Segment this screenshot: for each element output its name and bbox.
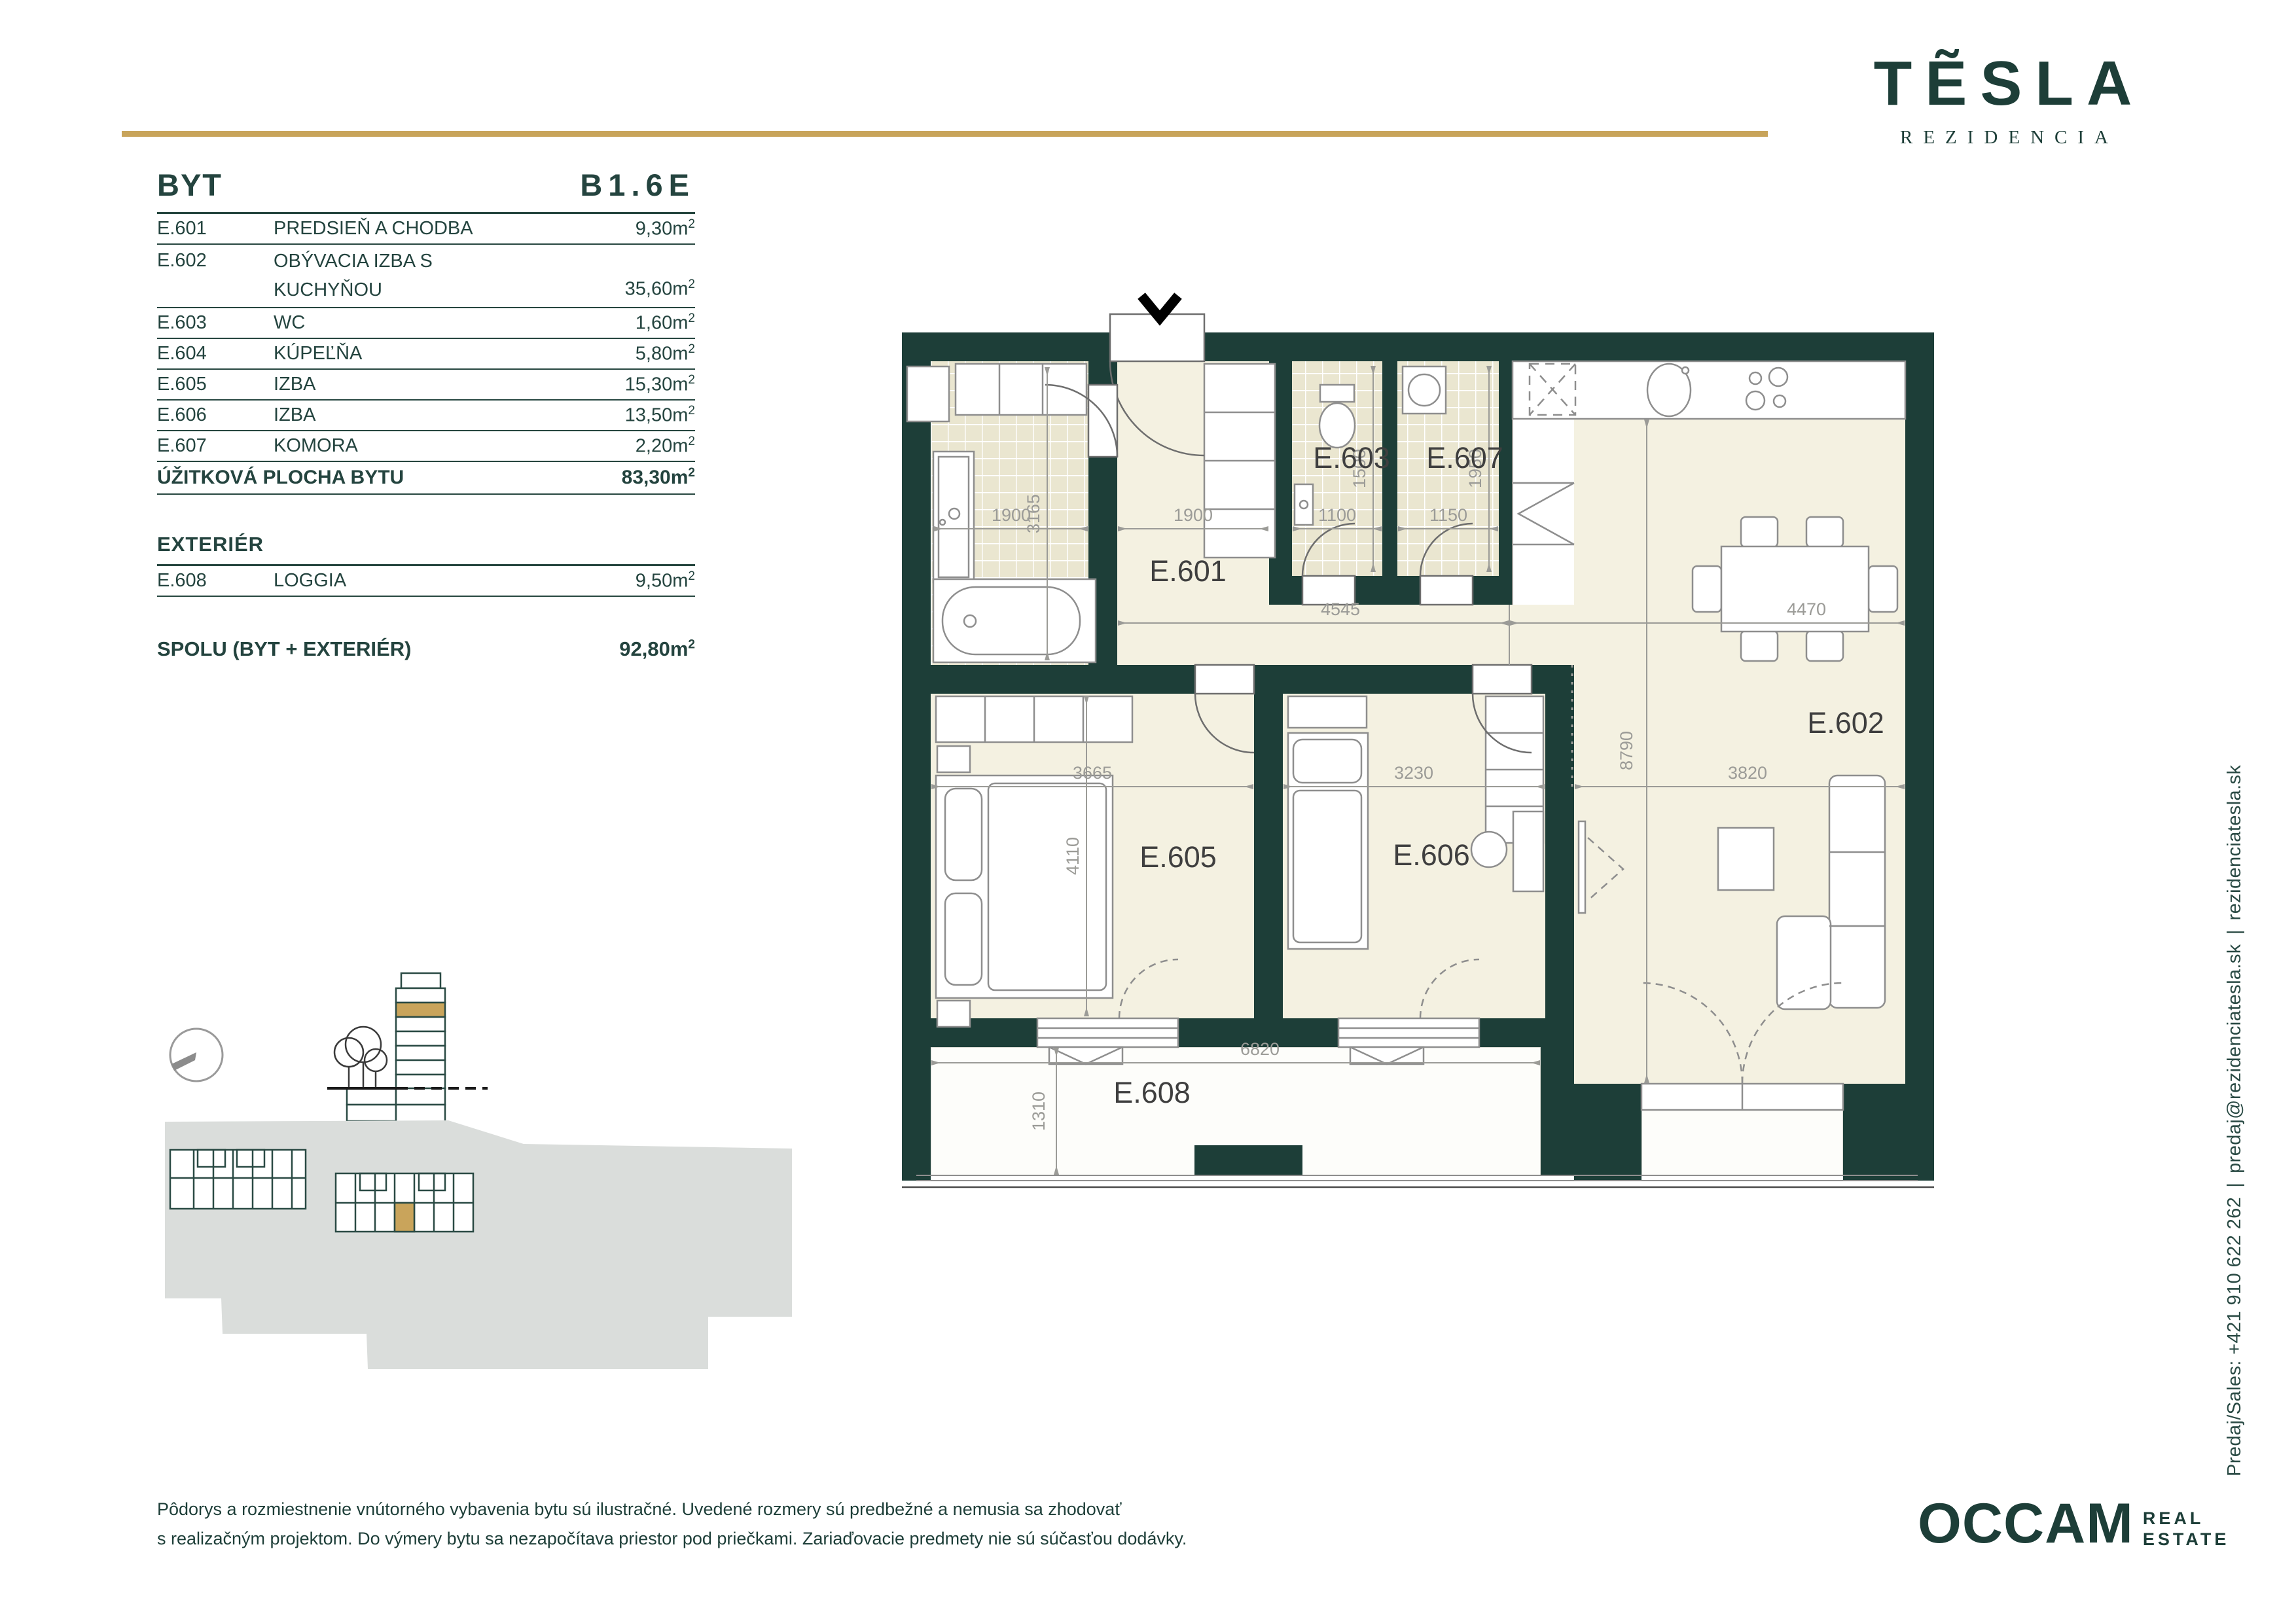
spolu-row: SPOLU (BYT + EXTERIÉR) 92,80m2	[157, 637, 695, 661]
row-area: 9,30m2	[551, 217, 695, 240]
window	[1338, 1018, 1479, 1047]
desk	[1513, 811, 1543, 891]
row-name: KOMORA	[274, 431, 490, 461]
site-plan	[165, 1120, 792, 1369]
spolu-label: SPOLU (BYT + EXTERIÉR)	[157, 637, 551, 661]
row-name: LOGGIA	[274, 566, 490, 596]
chair	[1806, 517, 1843, 547]
table-row: E.602 OBÝVACIA IZBA S KUCHYŇOU 35,60m2	[157, 245, 695, 308]
komora-door	[1420, 576, 1473, 605]
dim-label: 3230	[1394, 763, 1433, 783]
brochure-page: TẼSLA REZIDENCIA BYT B1.6E E.601 PREDSIE…	[0, 0, 2296, 1623]
building-a-footprint	[170, 1150, 306, 1209]
dim-label: 3665	[1073, 763, 1112, 783]
room-label-e608: E.608	[1113, 1076, 1191, 1109]
total-area: 83,30m2	[551, 466, 695, 489]
room-label-e606: E.606	[1393, 838, 1470, 872]
bathroom-door	[1088, 385, 1117, 457]
room-rows: E.601 PREDSIEŇ A CHODBA 9,30m2 E.602 OBÝ…	[157, 212, 695, 495]
tree-icon	[365, 1049, 387, 1071]
dim-label: 1900	[1174, 505, 1213, 525]
exterier-rows: E.608 LOGGIA 9,50m2	[157, 564, 695, 597]
dim-label: 4110	[1063, 837, 1083, 875]
window	[1037, 1018, 1178, 1047]
sink-tap	[1682, 367, 1689, 374]
row-name: IZBA	[274, 370, 490, 399]
dim-label: 6820	[1240, 1039, 1280, 1059]
dim-label: 3165	[1024, 494, 1043, 533]
floorplan: 1900 1900 1100 1150 3165 1500 1950 4545 …	[897, 288, 1944, 1204]
shaft-break-symbol	[1513, 483, 1574, 544]
disclaimer-line2: s realizačným projektom. Do výmery bytu …	[157, 1524, 1597, 1554]
row-code: E.605	[157, 374, 274, 395]
bathroom-cabinet	[956, 364, 1086, 415]
row-code: E.608	[157, 570, 274, 592]
dim-label: 1150	[1429, 505, 1467, 525]
row-name: WC	[274, 308, 490, 338]
building-elevation	[327, 973, 488, 1124]
row-name: PREDSIEŇ A CHODBA	[274, 214, 490, 243]
wc-washbasin	[1295, 484, 1313, 525]
chair	[1869, 566, 1897, 612]
coffee-table	[1718, 828, 1774, 890]
row-area: 35,60m2	[551, 277, 695, 307]
spolu-area: 92,80m2	[551, 637, 695, 661]
single-bed	[1288, 733, 1368, 949]
row-code: E.606	[157, 404, 274, 426]
website-link[interactable]: rezidenciatesla.sk	[2224, 765, 2245, 921]
disclaimer: Pôdorys a rozmiestnenie vnútorného vybav…	[157, 1495, 1597, 1553]
dim-label: 4545	[1321, 599, 1360, 619]
row-name: KÚPEĽŇA	[274, 339, 490, 368]
row-code: E.607	[157, 435, 274, 457]
chair	[1741, 631, 1778, 661]
row-area: 2,20m2	[551, 435, 695, 457]
row-code: E.601	[157, 218, 274, 240]
chair	[1693, 566, 1721, 612]
unit-code: B1.6E	[580, 167, 695, 203]
room-label-e605: E.605	[1139, 840, 1217, 874]
total-row: ÚŽITKOVÁ PLOCHA BYTU 83,30m2	[157, 462, 695, 495]
dim-label: 1100	[1318, 505, 1356, 525]
row-code: E.604	[157, 343, 274, 365]
tesla-logo: TẼSLA REZIDENCIA	[1820, 52, 2199, 149]
dim-label: 4470	[1787, 599, 1826, 619]
row-area: 1,60m2	[551, 312, 695, 334]
bedroom2-door	[1473, 665, 1532, 694]
table-row: E.605 IZBA 15,30m2	[157, 370, 695, 401]
tesla-logo-subtitle: REZIDENCIA	[1820, 127, 2199, 149]
room-label-e601: E.601	[1149, 554, 1227, 588]
row-code: E.603	[157, 312, 274, 334]
corridor-floor	[1269, 605, 1574, 665]
total-label: ÚŽITKOVÁ PLOCHA BYTU	[157, 467, 551, 489]
row-code: E.602	[157, 245, 274, 272]
table-row: E.604 KÚPEĽŇA 5,80m2	[157, 339, 695, 370]
dim-label: 1310	[1029, 1092, 1049, 1131]
table-header: BYT B1.6E	[157, 167, 695, 203]
loggia-right-floor	[1641, 1110, 1843, 1175]
occam-logo: OCCAM REAL ESTATE	[1918, 1497, 2229, 1551]
table-row: E.608 LOGGIA 9,50m2	[157, 566, 695, 597]
table-row: E.607 KOMORA 2,20m2	[157, 431, 695, 462]
occam-logo-subtitle: REAL ESTATE	[2143, 1508, 2230, 1550]
bathtub	[933, 579, 1096, 662]
row-area: 13,50m2	[551, 404, 695, 427]
row-area: 5,80m2	[551, 342, 695, 365]
row-name: OBÝVACIA IZBA S KUCHYŇOU	[274, 247, 490, 306]
sales-phone: Predaj/Sales: +421 910 622 262	[2224, 1197, 2245, 1476]
row-area: 9,50m2	[551, 569, 695, 592]
exterier-heading: EXTERIÉR	[157, 533, 695, 556]
komora	[1403, 366, 1446, 414]
row-name: IZBA	[274, 401, 490, 430]
shaft	[907, 366, 949, 421]
chair	[1806, 631, 1843, 661]
disclaimer-line1: Pôdorys a rozmiestnenie vnútorného vybav…	[157, 1495, 1597, 1524]
bedroom1-door	[1195, 665, 1254, 694]
room-label-e603: E.603	[1313, 441, 1390, 474]
tesla-logo-text: TẼSLA	[1820, 52, 2199, 115]
building-b-footprint	[336, 1173, 473, 1232]
sales-email[interactable]: predaj@rezidenciatesla.sk	[2224, 944, 2245, 1173]
occam-logo-text: OCCAM	[1918, 1497, 2134, 1551]
washbasin	[933, 452, 974, 582]
cabinet	[1288, 696, 1367, 728]
table-row: E.603 WC 1,60m2	[157, 308, 695, 339]
room-label-e607: E.607	[1426, 441, 1503, 474]
highlighted-floor	[396, 1003, 445, 1017]
dim-label: 3820	[1728, 763, 1767, 783]
byt-label: BYT	[157, 167, 223, 203]
toilet-tank	[1320, 385, 1354, 402]
table-row: E.601 PREDSIEŇ A CHODBA 9,30m2	[157, 214, 695, 245]
sofa-chaise	[1777, 916, 1831, 1009]
sofa	[1829, 776, 1885, 1008]
row-area: 15,30m2	[551, 373, 695, 396]
chair	[1741, 517, 1778, 547]
table-row: E.606 IZBA 13,50m2	[157, 401, 695, 431]
nightstand	[937, 746, 970, 772]
nightstand	[937, 1001, 970, 1027]
contact-strip: Predaj/Sales: +421 910 622 262|predaj@re…	[2224, 547, 2246, 1476]
site-graphics	[151, 955, 805, 1381]
room-label-e602: E.602	[1807, 706, 1884, 740]
highlighted-unit	[395, 1203, 414, 1232]
gold-divider	[122, 131, 1768, 137]
compass-icon	[170, 1029, 223, 1081]
unit-area-table: BYT B1.6E E.601 PREDSIEŇ A CHODBA 9,30m2…	[157, 167, 695, 661]
desk-chair	[1471, 832, 1507, 867]
dim-label: 8790	[1617, 731, 1636, 770]
kitchen-counter	[1513, 361, 1905, 419]
loggia-railing	[902, 1175, 1934, 1187]
